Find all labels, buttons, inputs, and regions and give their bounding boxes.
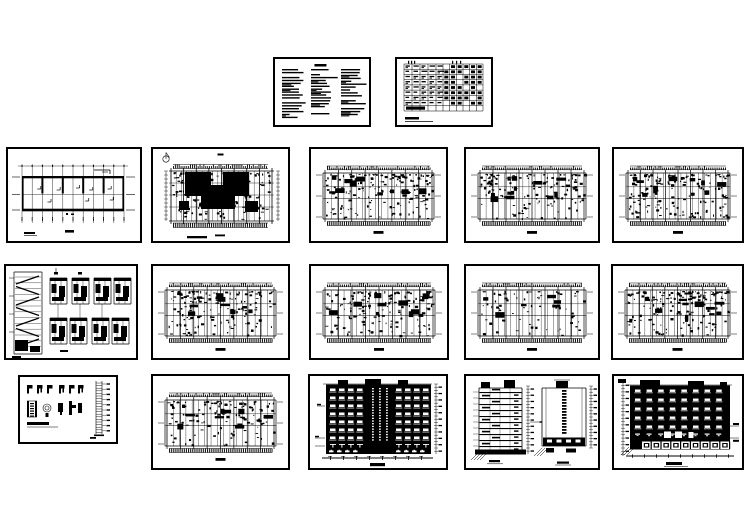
- sheet-floor-plan-5: [309, 264, 449, 360]
- front-elevation-drawing: [310, 376, 446, 468]
- sheet-floor-plan-6: [464, 264, 600, 360]
- sheet-floor-plan-3: [612, 147, 744, 243]
- sheet-floor-plan-4: [151, 264, 290, 360]
- floor-plan-drawing: [153, 266, 288, 358]
- sheet-site-plan: [151, 147, 290, 243]
- sheet-door-window-schedule: [395, 57, 493, 127]
- floor-plan-drawing: [614, 149, 742, 241]
- design-notes-drawing: [275, 59, 369, 125]
- sheet-stair-details: [4, 264, 138, 360]
- schedule-table-drawing: [397, 59, 491, 125]
- sheet-sections: [464, 374, 600, 470]
- construction-details-drawing: [20, 377, 116, 442]
- sheet-floor-plan-7: [611, 264, 744, 360]
- sheet-floor-plan-1: [309, 147, 448, 243]
- rear-elevation-drawing: [614, 376, 742, 468]
- floor-plan-drawing: [311, 266, 447, 358]
- floor-plan-drawing: [466, 149, 598, 241]
- sheet-construction-details: [18, 375, 118, 444]
- u-plan-drawing: [153, 149, 288, 241]
- sheet-roof-plan: [6, 147, 142, 243]
- sheet-design-notes: [273, 57, 371, 127]
- sheet-floor-plan-2: [464, 147, 600, 243]
- drawing-collage: [0, 0, 749, 530]
- sheet-floor-plan-8: [151, 374, 290, 470]
- floor-plan-drawing: [153, 376, 288, 468]
- simple-plan-drawing: [8, 149, 140, 241]
- sheet-rear-elevation: [612, 374, 744, 470]
- sheet-front-elevation: [308, 374, 448, 470]
- stair-details-drawing: [6, 266, 136, 358]
- floor-plan-drawing: [311, 149, 446, 241]
- floor-plan-drawing: [613, 266, 742, 358]
- floor-plan-drawing: [466, 266, 598, 358]
- sections-drawing: [466, 376, 598, 468]
